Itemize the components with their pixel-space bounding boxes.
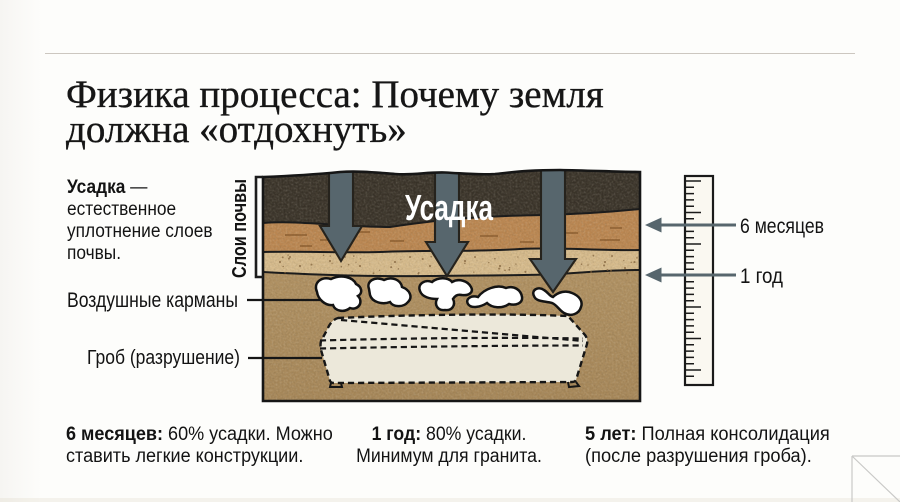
svg-text:Усадка: Усадка bbox=[405, 187, 494, 228]
svg-text:Слои почвы: Слои почвы bbox=[229, 179, 251, 278]
svg-text:Гроб (разрушение): Гроб (разрушение) bbox=[87, 347, 240, 369]
svg-text:6 месяцев: 6 месяцев bbox=[740, 215, 824, 238]
svg-text:Воздушные карманы: Воздушные карманы bbox=[67, 289, 238, 312]
svg-text:1 год: 1 год bbox=[740, 265, 783, 288]
